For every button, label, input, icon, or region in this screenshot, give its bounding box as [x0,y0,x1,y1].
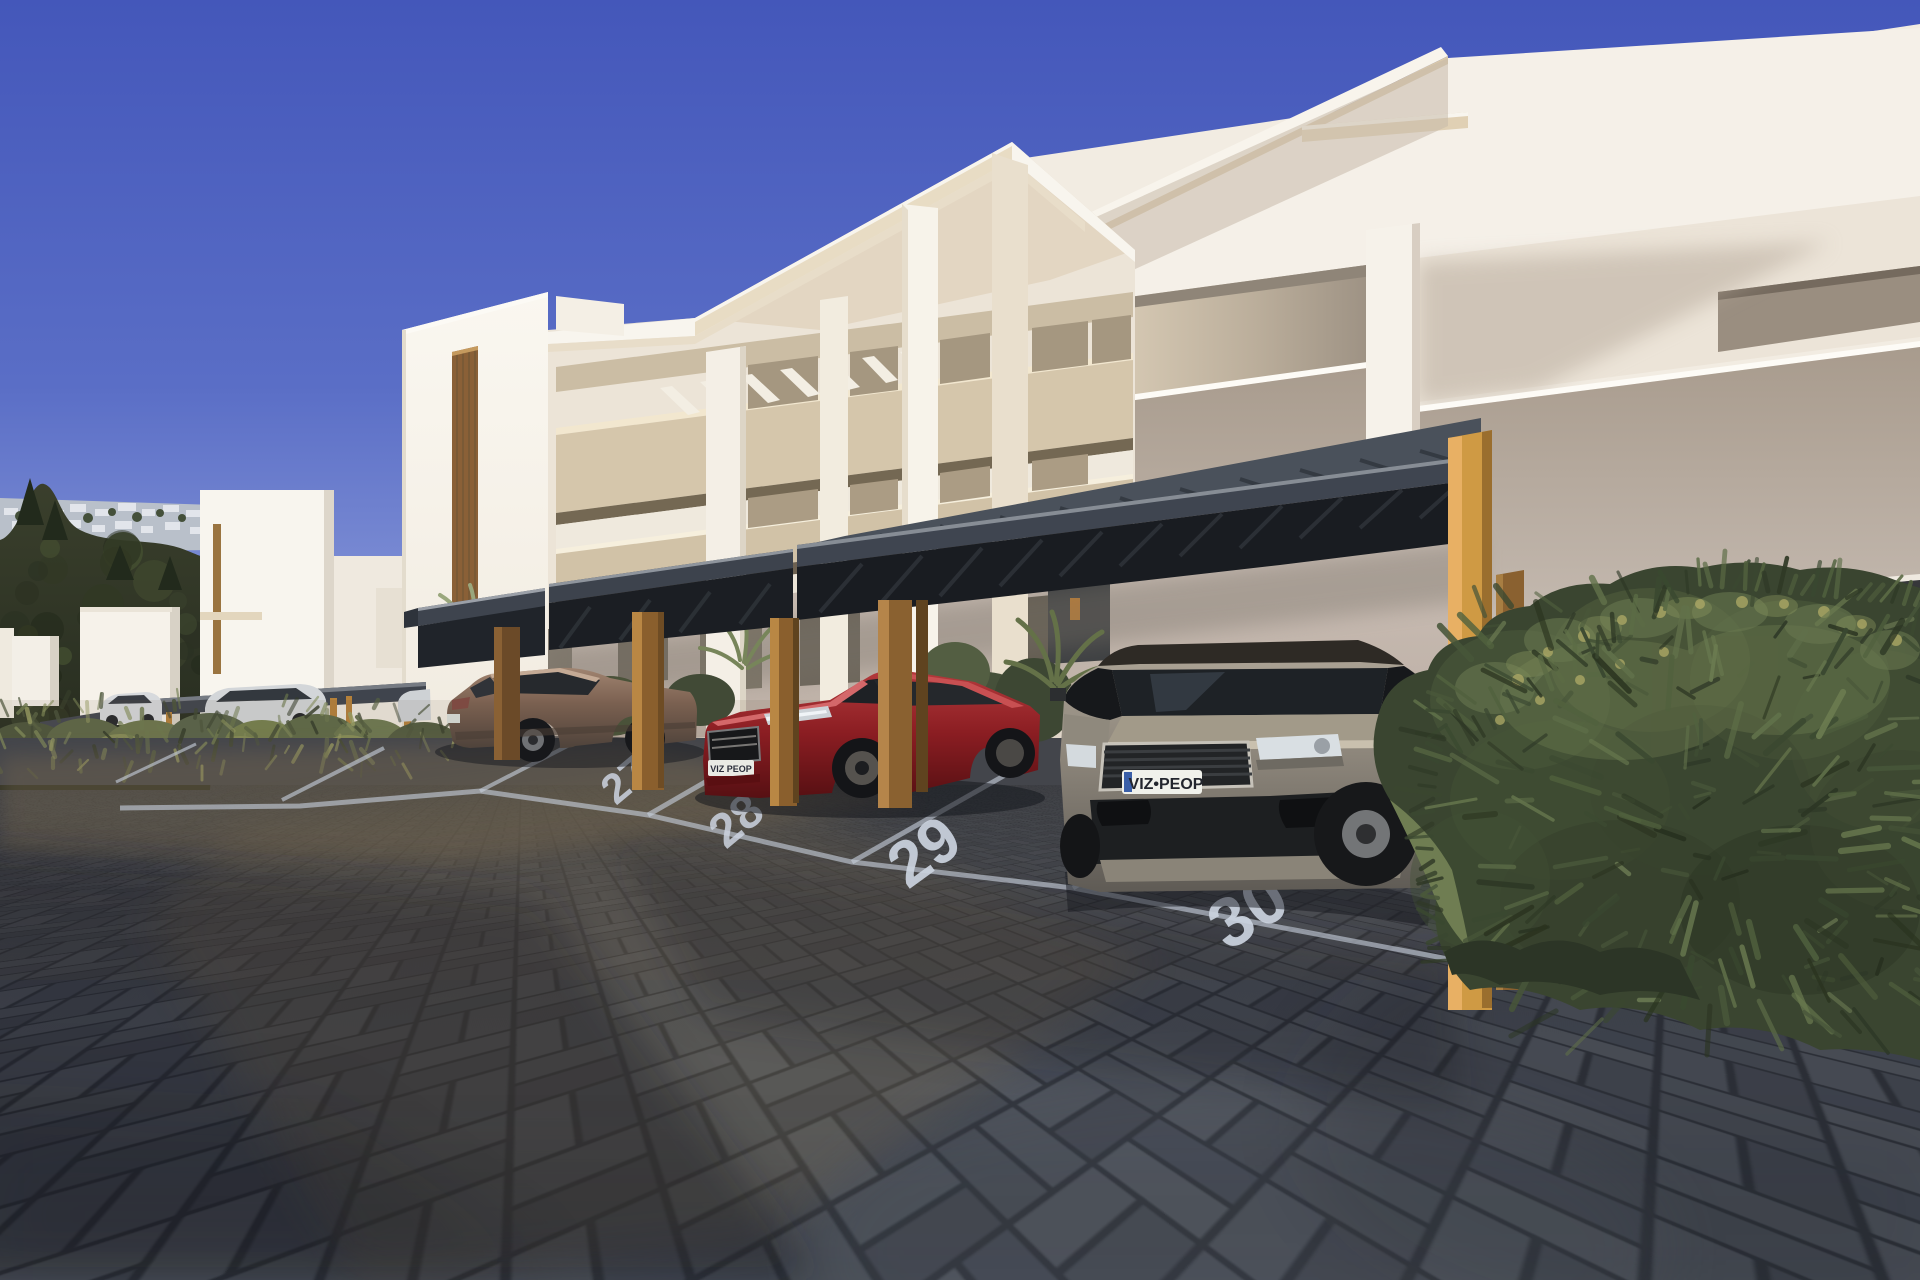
svg-text:VIZ•PEOP: VIZ•PEOP [1129,776,1204,793]
svg-text:VIZ PEOP: VIZ PEOP [710,764,752,774]
